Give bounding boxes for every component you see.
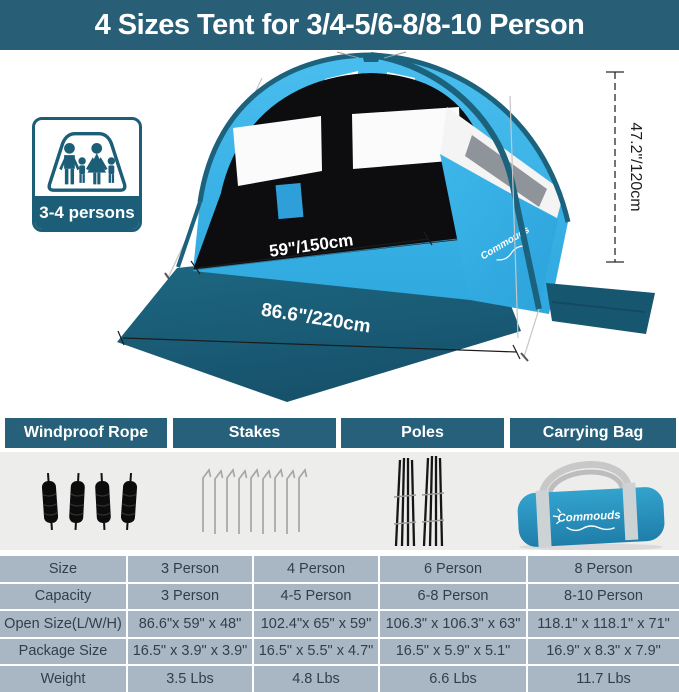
apex-cap (362, 53, 381, 62)
height-label: 47.2"/120cm (627, 122, 644, 211)
spec-value-cell: 16.5" x 5.5" x 4.7" (254, 639, 378, 665)
spec-row-label-size: Size (0, 556, 126, 582)
rope-icon (41, 473, 138, 531)
pole-icon (394, 456, 444, 546)
spec-row-label-capacity: Capacity (0, 584, 126, 610)
stake-icon (203, 470, 307, 534)
sand-pocket (546, 283, 655, 334)
spec-value-cell: 3 Person (128, 556, 252, 582)
spec-value-cell: 11.7 Lbs (528, 666, 679, 692)
section-header-stakes: Stakes (173, 418, 336, 448)
spec-value-cell: 16.9" x 8.3" x 7.9" (528, 639, 679, 665)
spec-value-cell: 6 Person (380, 556, 526, 582)
spec-value-cell: 4 Person (254, 556, 378, 582)
spec-value-cell: 102.4"x 65" x 59" (254, 611, 378, 637)
accessories-illustrations: Commouds (0, 452, 679, 550)
accessories-band: Commouds (0, 452, 679, 550)
capacity-badge-label: 3-4 persons (39, 203, 134, 223)
product-infographic: 4 Sizes Tent for 3/4-5/6-8/8-10 Person (0, 0, 679, 692)
spec-value-cell: 8 Person (528, 556, 679, 582)
section-label: Carrying Bag (543, 424, 643, 442)
spec-value-cell: 16.5" x 3.9" x 3.9" (128, 639, 252, 665)
spec-table: Size3 Person4 Person6 Person8 PersonCapa… (0, 556, 679, 692)
spec-value-cell: 4.8 Lbs (254, 666, 378, 692)
tent-diagram: Commouds 59"/150cm 86.6"/220c (0, 50, 679, 415)
section-label: Poles (401, 424, 444, 442)
spec-value-cell: 3.5 Lbs (128, 666, 252, 692)
spec-value-cell: 86.6"x 59" x 48" (128, 611, 252, 637)
capacity-badge-bar: 3-4 persons (35, 196, 139, 229)
spec-value-cell: 6.6 Lbs (380, 666, 526, 692)
family-in-tent-icon (35, 122, 139, 198)
spec-row-label-package-size: Package Size (0, 639, 126, 665)
spec-row-label-weight: Weight (0, 666, 126, 692)
section-header-carrying-bag: Carrying Bag (510, 418, 676, 448)
guy-rope-corner (524, 309, 539, 357)
section-label: Windproof Rope (24, 424, 148, 442)
spec-value-cell: 118.1" x 118.1" x 71" (528, 611, 679, 637)
bag-icon: Commouds (515, 461, 665, 550)
capacity-badge: 3-4 persons (32, 117, 142, 232)
spec-value-cell: 4-5 Person (254, 584, 378, 610)
spec-value-cell: 16.5" x 5.9" x 5.1" (380, 639, 526, 665)
section-header-poles: Poles (341, 418, 504, 448)
section-header-windproof-rope: Windproof Rope (5, 418, 167, 448)
spec-value-cell: 106.3" x 106.3" x 63" (380, 611, 526, 637)
spec-value-cell: 8-10 Person (528, 584, 679, 610)
storage-pocket (276, 183, 304, 219)
dimension-height: 47.2"/120cm (606, 72, 644, 262)
spec-value-cell: 6-8 Person (380, 584, 526, 610)
title-bar: 4 Sizes Tent for 3/4-5/6-8/8-10 Person (0, 0, 679, 50)
spec-value-cell: 3 Person (128, 584, 252, 610)
spec-row-label-open-size-l-w-h-: Open Size(L/W/H) (0, 611, 126, 637)
page-title: 4 Sizes Tent for 3/4-5/6-8/8-10 Person (95, 9, 585, 42)
section-label: Stakes (229, 424, 281, 442)
